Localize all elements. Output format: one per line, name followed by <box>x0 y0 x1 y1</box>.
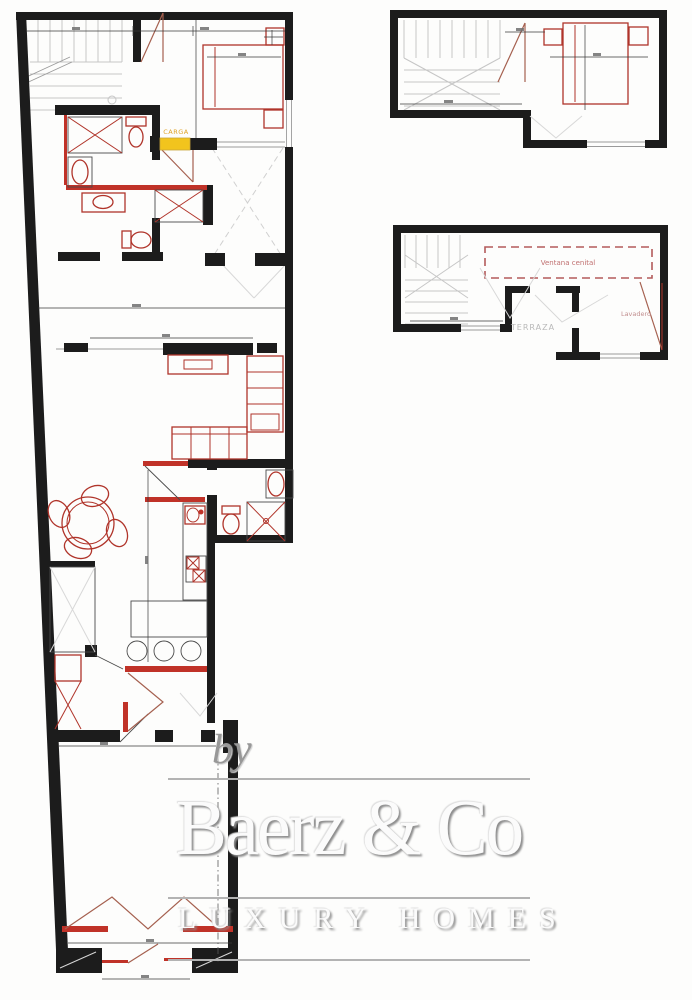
terrace-label: TERRAZA <box>510 323 555 332</box>
doors-upper <box>498 23 582 138</box>
upper-level-plan <box>390 10 667 148</box>
staircase-main <box>20 20 122 110</box>
walls-upper <box>390 10 667 148</box>
skylight: Ventana cenital <box>485 247 652 278</box>
walls-terrace <box>393 225 668 360</box>
bed-upper <box>544 23 648 104</box>
laundry-label: Lavadero <box>621 310 651 318</box>
kitchen <box>127 503 207 661</box>
staircase-upper <box>404 20 500 110</box>
staircase-terrace <box>405 235 468 324</box>
skylight-label: Ventana cenital <box>541 259 596 267</box>
main-floor-plan: CARGA <box>16 12 293 979</box>
dressing-area <box>212 142 288 298</box>
bathroom-fixtures-upper <box>68 117 203 248</box>
floor-plan-page: CARGA <box>0 0 692 1000</box>
carga-shaft: CARGA <box>160 128 190 150</box>
bathroom-fixtures-lower <box>222 470 293 541</box>
living-room-furniture <box>168 355 283 459</box>
walls-main <box>16 12 293 973</box>
dining-table <box>44 482 131 562</box>
dimension-lines-upper <box>400 25 648 110</box>
carga-label: CARGA <box>163 128 189 136</box>
floor-plan-drawing: CARGA <box>0 0 692 1000</box>
terrace-level-plan: Ventana cenital TERRAZA Lavadero <box>393 225 668 360</box>
